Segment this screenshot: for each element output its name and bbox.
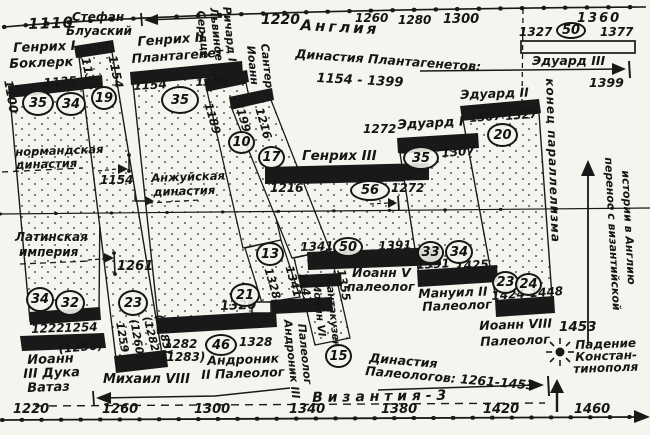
bottom-tick-1260: 1260 bbox=[102, 402, 138, 417]
plantagenet-end-year: 1399 bbox=[589, 75, 624, 90]
duration-kantakuzen: 15 bbox=[325, 344, 352, 368]
duration-john5: 50 bbox=[333, 237, 363, 257]
duration-john: 17 bbox=[258, 146, 285, 169]
stephen-name-line1: Стефан bbox=[72, 10, 124, 24]
john3-start-year: 1222 bbox=[31, 321, 65, 336]
duration-john3-a: 34 bbox=[26, 287, 54, 312]
fall-year: 1453 bbox=[559, 319, 597, 335]
duration-john3-b: 32 bbox=[55, 290, 85, 316]
henry3-start-year: 1216 bbox=[270, 181, 303, 195]
duration-edward3: 50 bbox=[556, 22, 586, 39]
byzantium-left-arrow-line bbox=[100, 388, 290, 398]
bottom-axis-line bbox=[2, 417, 636, 420]
bottom-tick-1300: 1300 bbox=[194, 402, 230, 417]
top-tick-1220: 1220 bbox=[261, 12, 300, 28]
john8-name-line1: Иоанн VIII bbox=[479, 315, 552, 333]
byzantium-left-tick bbox=[93, 391, 94, 405]
andronik2-start-alt-year: (1283) bbox=[161, 350, 205, 364]
manuel2-name-line2: Палеолог bbox=[422, 297, 492, 314]
latin-empire-line2: империя bbox=[19, 245, 78, 259]
michael8-name: Михаил VIII bbox=[103, 372, 190, 387]
henry1-end-year: 1135 bbox=[43, 74, 77, 90]
bottom-tick-1460: 1460 bbox=[574, 402, 610, 417]
edward1-start-year: 1272 bbox=[363, 122, 396, 136]
year-1453-up-arrowhead bbox=[550, 379, 564, 393]
andronik2-name-line2: II Палеолог bbox=[201, 364, 285, 382]
bottom-tick-1380: 1380 bbox=[381, 402, 417, 417]
stephen-name-line2: Блуаский bbox=[66, 24, 132, 38]
sun-icon bbox=[546, 338, 574, 366]
duration-michael8: 23 bbox=[118, 290, 148, 316]
henry3-name: Генрих III bbox=[302, 148, 377, 164]
duration-henry1-a: 35 bbox=[22, 90, 54, 116]
angevin-dynasty-line2: династия bbox=[153, 183, 215, 199]
top-tick-1360: 1360 bbox=[577, 11, 621, 26]
duration-henry3: 56 bbox=[350, 180, 390, 201]
year-1261-marker bbox=[114, 252, 115, 275]
stephen-arrow-tick bbox=[141, 13, 142, 26]
andronik2-end-year: 1328 bbox=[239, 335, 272, 349]
angevin-start-dot bbox=[127, 153, 131, 157]
edward3-end-year: 1377 bbox=[600, 25, 633, 39]
latin-empire-end-year: 1261 bbox=[117, 259, 153, 274]
john3-end-year: 1254 bbox=[64, 320, 98, 335]
duration-edward2: 20 bbox=[487, 123, 518, 147]
duration-manuel2-b: 34 bbox=[445, 240, 473, 264]
year-1261-dot-top bbox=[112, 251, 116, 255]
john5-name-line1: Иоанн V bbox=[352, 265, 411, 280]
andronik2-start-year: 1282 bbox=[164, 337, 197, 351]
henry1-name-line2: Боклерк bbox=[9, 55, 74, 72]
bottom-tick-1340: 1340 bbox=[289, 402, 325, 417]
john8-name-line2: Палеолог bbox=[480, 332, 550, 349]
edward3-name: Эдуард III bbox=[532, 53, 605, 68]
henry3-end-year: 1272 bbox=[391, 181, 424, 195]
top-tick-1260: 1260 bbox=[355, 11, 388, 25]
henry2-start-year: 1154 bbox=[133, 77, 167, 93]
transfer-up-arrowhead bbox=[581, 160, 595, 176]
duration-andronik2: 46 bbox=[205, 334, 237, 356]
top-tick-1300: 1300 bbox=[443, 12, 479, 27]
norman-dynasty-line2: династия bbox=[15, 156, 77, 172]
duration-andronik3: 13 bbox=[256, 242, 284, 266]
duration-richard: 10 bbox=[228, 131, 255, 154]
john3-name-line3: Ватаз bbox=[27, 380, 70, 396]
duration-henry2: 35 bbox=[161, 86, 199, 114]
bottom-tick-1420: 1420 bbox=[483, 402, 519, 417]
edward3-start-year: 1327 bbox=[519, 25, 552, 39]
stephen-arrowhead bbox=[144, 14, 158, 25]
top-tick-1280: 1280 bbox=[398, 13, 431, 27]
palaiologos-span-end-tick bbox=[548, 376, 549, 396]
bottom-tick-1220: 1220 bbox=[13, 402, 49, 417]
henry2-end-year: 1189 bbox=[195, 73, 229, 89]
region-label-byzantium: В и з а н т и я - 3 bbox=[312, 388, 446, 406]
edward2-name: Эдуард II bbox=[460, 85, 529, 102]
duration-john8-b: 24 bbox=[515, 273, 542, 296]
plantagenet-span-arrowhead bbox=[612, 63, 626, 75]
edward2-end-year: 1327 bbox=[505, 107, 538, 123]
duration-henry1-b: 34 bbox=[56, 92, 86, 116]
latin-empire-line1: Латинская bbox=[15, 230, 88, 244]
edward3-bar bbox=[521, 41, 635, 53]
henry3-end-tick bbox=[398, 196, 399, 211]
duration-manuel2-a: 33 bbox=[417, 241, 444, 264]
angevin-start-year: 1154 bbox=[100, 173, 133, 187]
duration-stephen: 19 bbox=[91, 86, 117, 110]
john5-name-line2: палеолог bbox=[347, 279, 415, 294]
john5-start-year: 1341 bbox=[300, 239, 334, 254]
chronology-diagram: 1110 1220 Англия 1260 1280 1300 1360 Дин… bbox=[0, 0, 650, 435]
duration-edward1: 35 bbox=[403, 146, 439, 170]
bottom-axis-arrowhead bbox=[634, 410, 650, 423]
duration-andronik3-full: 21 bbox=[230, 283, 260, 307]
edward1-end-year: 1307 bbox=[441, 144, 475, 160]
fall-label-line3: тинополя bbox=[573, 360, 638, 376]
henry1-name-line1: Генрих I bbox=[13, 39, 76, 56]
john5-end-year: 1391 bbox=[378, 238, 412, 253]
plantagenet-span-end-tick bbox=[629, 61, 630, 78]
